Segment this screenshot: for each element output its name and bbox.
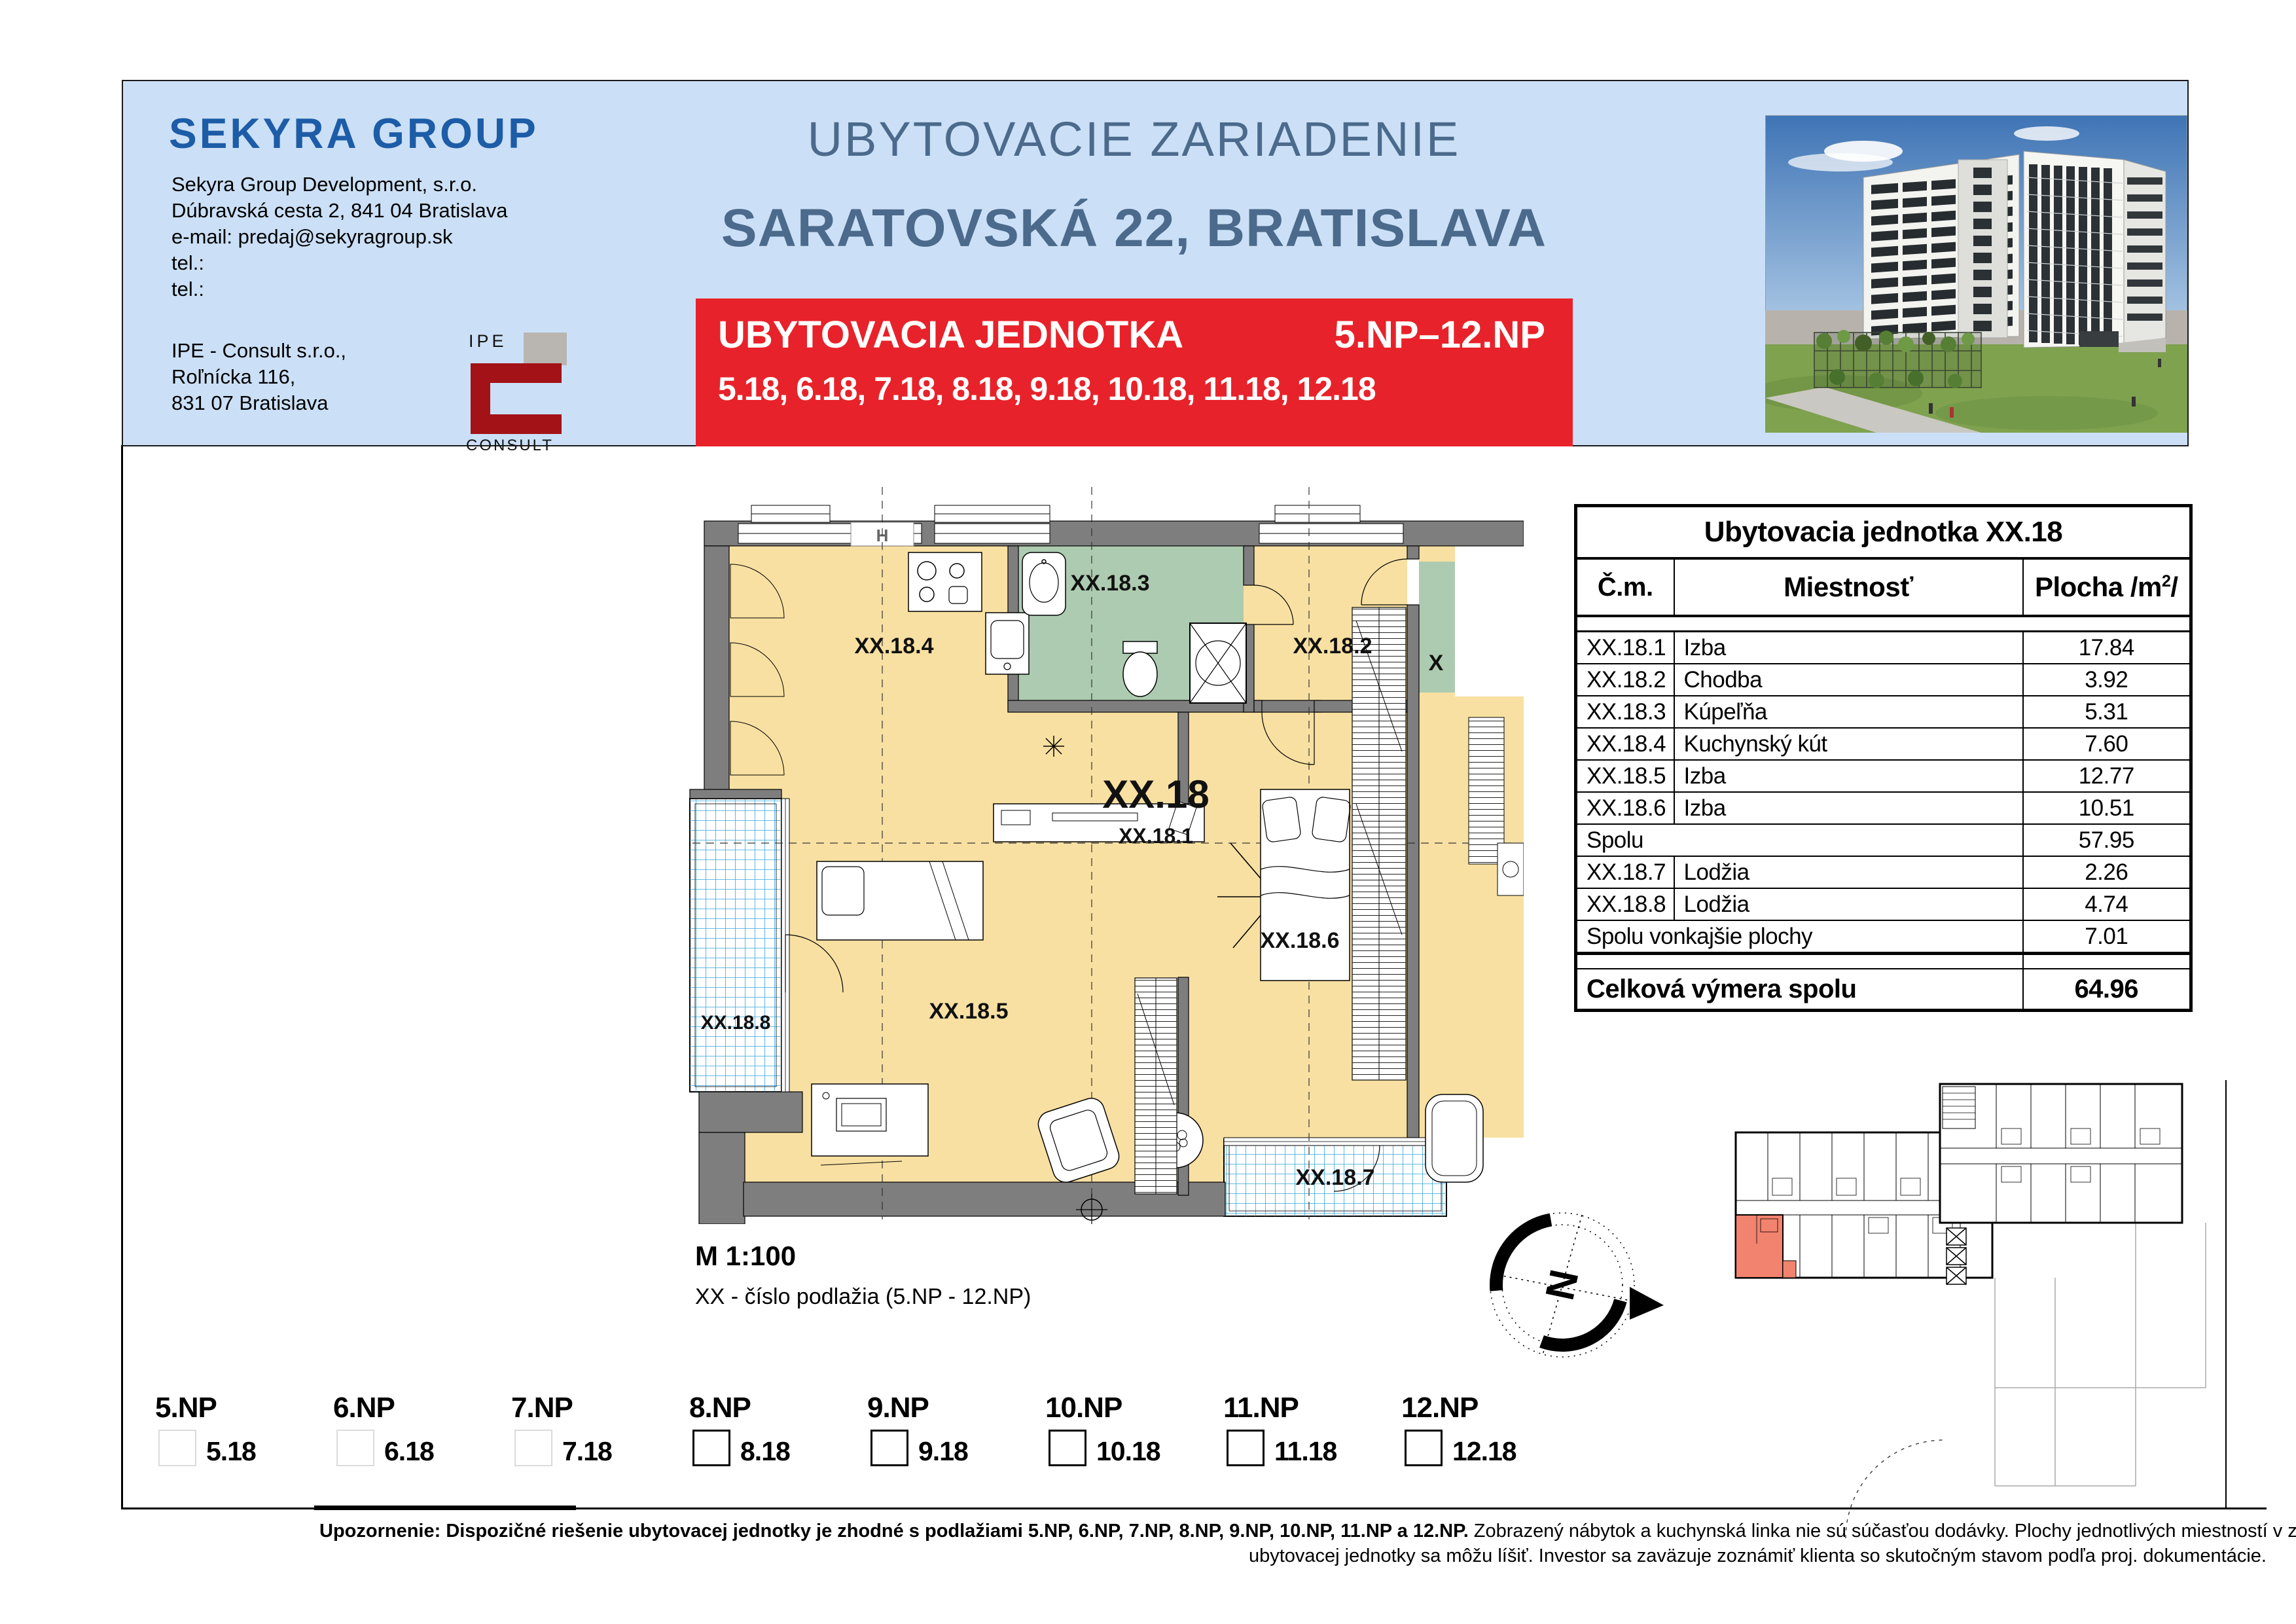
spacer-row: [1576, 954, 2191, 969]
room-label-bathroom: XX.18.3: [1071, 571, 1150, 596]
table-row: XX.18.4Kuchynský kút7.60: [1576, 728, 2191, 760]
floor-unit-5: 5.18: [206, 1436, 256, 1467]
side-balconies: [2127, 177, 2162, 321]
exterior-subtotal-row: Spolu vonkajšie plochy7.01: [1576, 920, 2191, 954]
table-row: XX.18.5Izba12.77: [1576, 760, 2191, 792]
table-row: XX.18.2Chodba3.92: [1576, 664, 2191, 696]
company-tel2: tel.:: [171, 276, 508, 302]
company-email: e-mail: predaj@sekyragroup.sk: [171, 224, 508, 250]
floor-unit-12: 12.18: [1452, 1436, 1516, 1467]
company-address: Dúbravská cesta 2, 841 04 Bratislava: [171, 198, 508, 224]
elevators: [1946, 1228, 1966, 1284]
total-row: Celková výmera spolu64.96: [1576, 969, 2191, 1011]
spacer-row: [1576, 616, 2191, 632]
area-table: Ubytovacia jednotka XX.18 Č.m. Miestnosť…: [1574, 504, 2193, 1012]
col-header-room: Miestnosť: [1674, 558, 2023, 616]
lawn-shade2: [1935, 396, 2158, 430]
floor-unit-9: 9.18: [918, 1436, 968, 1467]
consultant-city: 831 07 Bratislava: [171, 390, 346, 416]
pergola: [1814, 330, 1981, 388]
col-header-area: Plocha /m2/: [2023, 558, 2191, 616]
disclaimer-line2: ubytovacej jednotky sa môžu líšiť. Inves…: [319, 1543, 2267, 1568]
ipe-logo-top-label: IPE: [469, 331, 507, 351]
right-tower-balconies: [2029, 164, 2112, 346]
area-table-container: Ubytovacia jednotka XX.18 Č.m. Miestnosť…: [1574, 504, 2189, 1012]
page-frame-bottom-thick: [314, 1506, 576, 1510]
floor-unit-7: 7.18: [562, 1436, 612, 1467]
ipe-logo-bottom-label: CONSULT: [466, 437, 554, 454]
plan-scale: M 1:100: [695, 1240, 796, 1272]
room-label-izba5: XX.18.5: [929, 999, 1009, 1024]
unit-banner: UBYTOVACIA JEDNOTKA 5.NP–12.NP 5.18, 6.1…: [696, 298, 1573, 446]
floor-box-8: [692, 1430, 730, 1466]
table-row: XX.18.8Lodžia4.74: [1576, 888, 2191, 920]
banner-floor-range: 5.NP–12.NP: [1335, 313, 1545, 357]
floor-box-6: [336, 1430, 374, 1466]
building: [1863, 151, 2166, 352]
unit-floor-plan: H: [686, 477, 1524, 1224]
subtotal-row: Spolu57.95: [1576, 824, 2191, 856]
company-tel1: tel.:: [171, 250, 508, 276]
floor-unit-11: 11.18: [1274, 1436, 1336, 1467]
loggia-8: [690, 799, 781, 1092]
room-label-hall: XX.18.2: [1293, 634, 1372, 659]
compass-north-icon: N: [1474, 1197, 1683, 1373]
floor-box-7: [514, 1430, 552, 1466]
floor-label-6np: 6.NP: [333, 1392, 395, 1424]
compass-north-letter: N: [1536, 1266, 1587, 1304]
image-cut-corner: [1455, 546, 1524, 696]
disclaimer-line1: Upozornenie: Dispozičné riešenie ubytova…: [319, 1519, 2267, 1543]
page-frame-left: [121, 445, 123, 1509]
floor-label-8np: 8.NP: [689, 1392, 751, 1424]
floor-box-9: [870, 1430, 908, 1466]
floor-label-11np: 11.NP: [1223, 1392, 1299, 1424]
ipe-logo-gray-block: [524, 333, 567, 365]
disclaimer: Upozornenie: Dispozičné riešenie ubytova…: [319, 1519, 2267, 1568]
company-name: Sekyra Group Development, s.r.o.: [171, 171, 508, 198]
banner-label: UBYTOVACIA JEDNOTKA: [718, 313, 1183, 357]
building-key-plan: [1721, 1080, 2271, 1538]
page-subtitle: SARATOVSKÁ 22, BRATISLAVA: [694, 198, 1574, 259]
consultant-name: IPE - Consult s.r.o.,: [171, 338, 346, 364]
brochure-page: SEKYRA GROUP Sekyra Group Development, s…: [0, 0, 2296, 1624]
neighbor-label-partial: X: [1429, 651, 1444, 676]
floor-box-11: [1227, 1430, 1265, 1466]
room-label-izba6: XX.18.6: [1261, 928, 1340, 953]
floor-label-12np: 12.NP: [1401, 1392, 1478, 1424]
plan-note: XX - číslo podlažia (5.NP - 12.NP): [695, 1284, 1031, 1310]
room-label-kitchen: XX.18.4: [855, 634, 934, 659]
consultant-contact: IPE - Consult s.r.o., Roľnícka 116, 831 …: [171, 338, 346, 416]
consultant-street: Roľnícka 116,: [171, 364, 346, 390]
floor-unit-10: 10.18: [1096, 1436, 1160, 1467]
unit-label: XX.18: [1102, 772, 1209, 816]
banner-unit-list: 5.18, 6.18, 7.18, 8.18, 9.18, 10.18, 11.…: [718, 370, 1545, 408]
floor-label-7np: 7.NP: [511, 1392, 573, 1424]
room-label-loggia7: XX.18.7: [1296, 1165, 1375, 1190]
floor-label-5np: 5.NP: [155, 1392, 217, 1424]
building-render-image: [1765, 115, 2187, 433]
table-row: XX.18.3Kúpeľňa5.31: [1576, 696, 2191, 728]
right-wing: [1940, 1084, 2182, 1223]
table-row: XX.18.6Izba10.51: [1576, 792, 2191, 824]
floor-box-12: [1405, 1430, 1443, 1466]
sekyra-group-logo: SEKYRA GROUP: [169, 109, 539, 158]
entrance: [2079, 331, 2119, 347]
table-row: XX.18.1Izba17.84: [1576, 632, 2191, 664]
ipe-logo-red-mark: [480, 373, 562, 424]
floor-unit-6: 6.18: [384, 1436, 434, 1467]
terrace-outline: [1995, 1223, 2206, 1486]
company-contact: Sekyra Group Development, s.r.o. Dúbravs…: [171, 171, 508, 302]
floor-box-10: [1049, 1430, 1086, 1466]
table-title: Ubytovacia jednotka XX.18: [1576, 506, 2191, 559]
page-title: UBYTOVACIE ZARIADENIE: [694, 111, 1574, 167]
room-label-loggia8: XX.18.8: [701, 1012, 771, 1034]
compass-arrow: [1630, 1287, 1664, 1320]
ipe-consult-logo: IPE CONSULT: [458, 326, 579, 454]
floor-box-5: [158, 1430, 196, 1466]
floor-label-10np: 10.NP: [1045, 1392, 1122, 1424]
floor-label-9np: 9.NP: [867, 1392, 929, 1424]
floor-unit-8: 8.18: [740, 1436, 790, 1467]
col-header-num: Č.m.: [1576, 558, 1674, 616]
room-label-izba1: XX.18.1: [1119, 824, 1193, 848]
table-row: XX.18.7Lodžia2.26: [1576, 856, 2191, 888]
